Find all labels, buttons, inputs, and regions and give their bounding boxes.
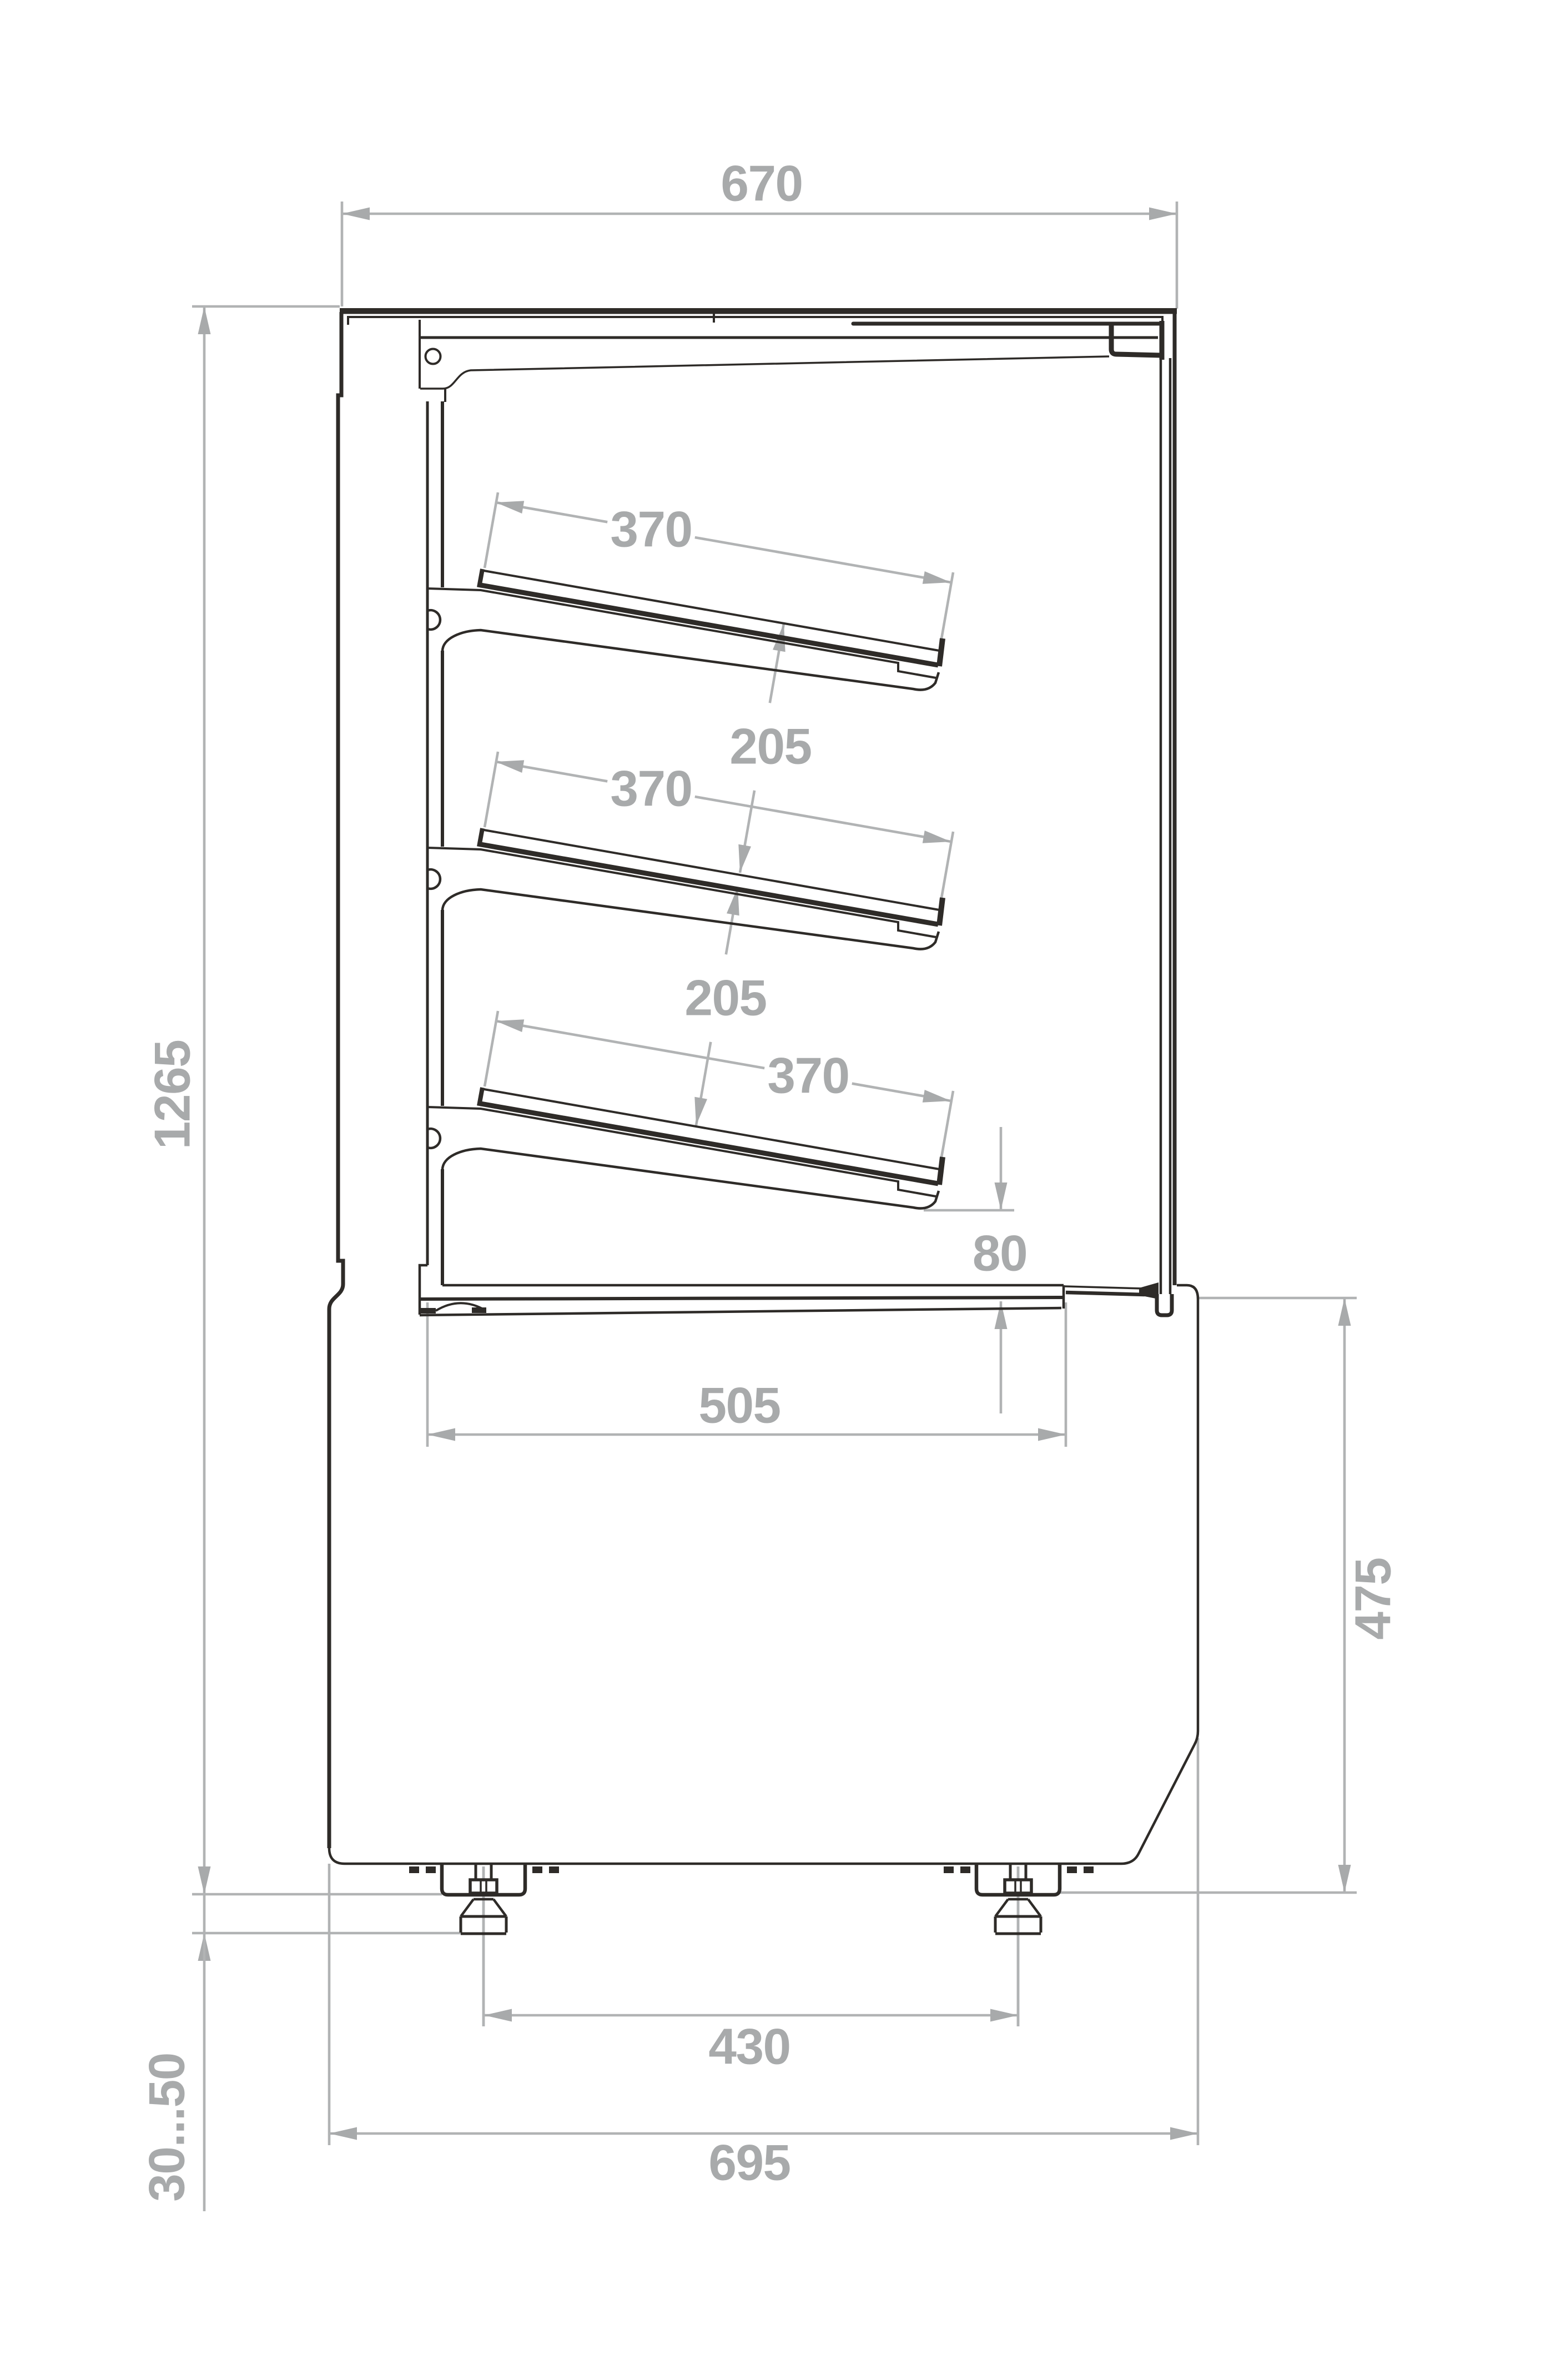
svg-text:370: 370 — [767, 1048, 849, 1104]
svg-text:370: 370 — [610, 502, 692, 558]
svg-text:80: 80 — [973, 1226, 1027, 1282]
svg-text:475: 475 — [1346, 1558, 1402, 1639]
svg-text:205: 205 — [729, 719, 811, 775]
svg-text:695: 695 — [708, 2135, 790, 2191]
svg-text:370: 370 — [610, 761, 692, 817]
svg-text:1265: 1265 — [145, 1040, 201, 1149]
svg-text:205: 205 — [684, 970, 766, 1027]
svg-text:30...50: 30...50 — [139, 2053, 195, 2202]
svg-text:505: 505 — [698, 1378, 780, 1434]
svg-text:430: 430 — [708, 2019, 790, 2075]
svg-text:670: 670 — [721, 156, 802, 212]
